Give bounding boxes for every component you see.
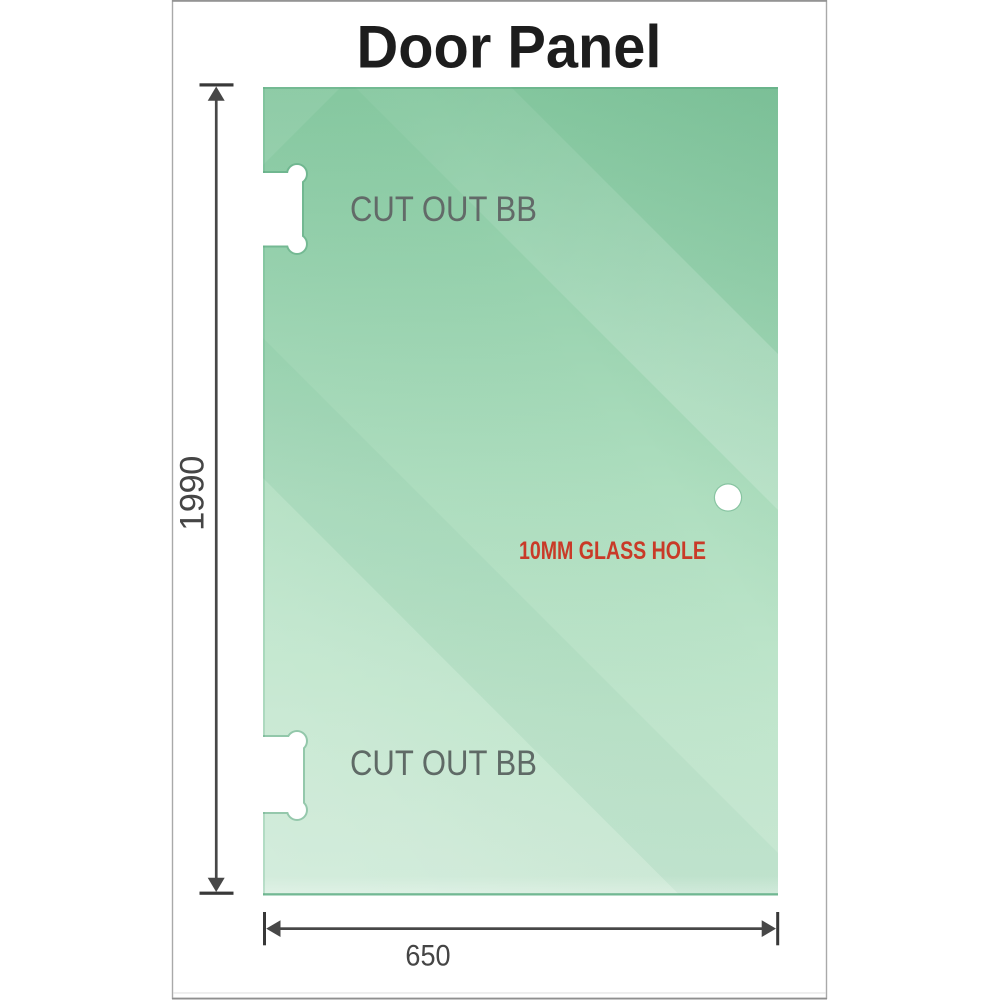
svg-text:Door Panel: Door Panel	[357, 12, 662, 81]
svg-text:CUT OUT BB: CUT OUT BB	[350, 190, 537, 229]
svg-text:650: 650	[405, 938, 450, 971]
svg-text:10MM GLASS HOLE: 10MM GLASS HOLE	[519, 537, 706, 565]
svg-text:1990: 1990	[174, 456, 212, 531]
svg-text:CUT OUT BB: CUT OUT BB	[350, 744, 537, 783]
